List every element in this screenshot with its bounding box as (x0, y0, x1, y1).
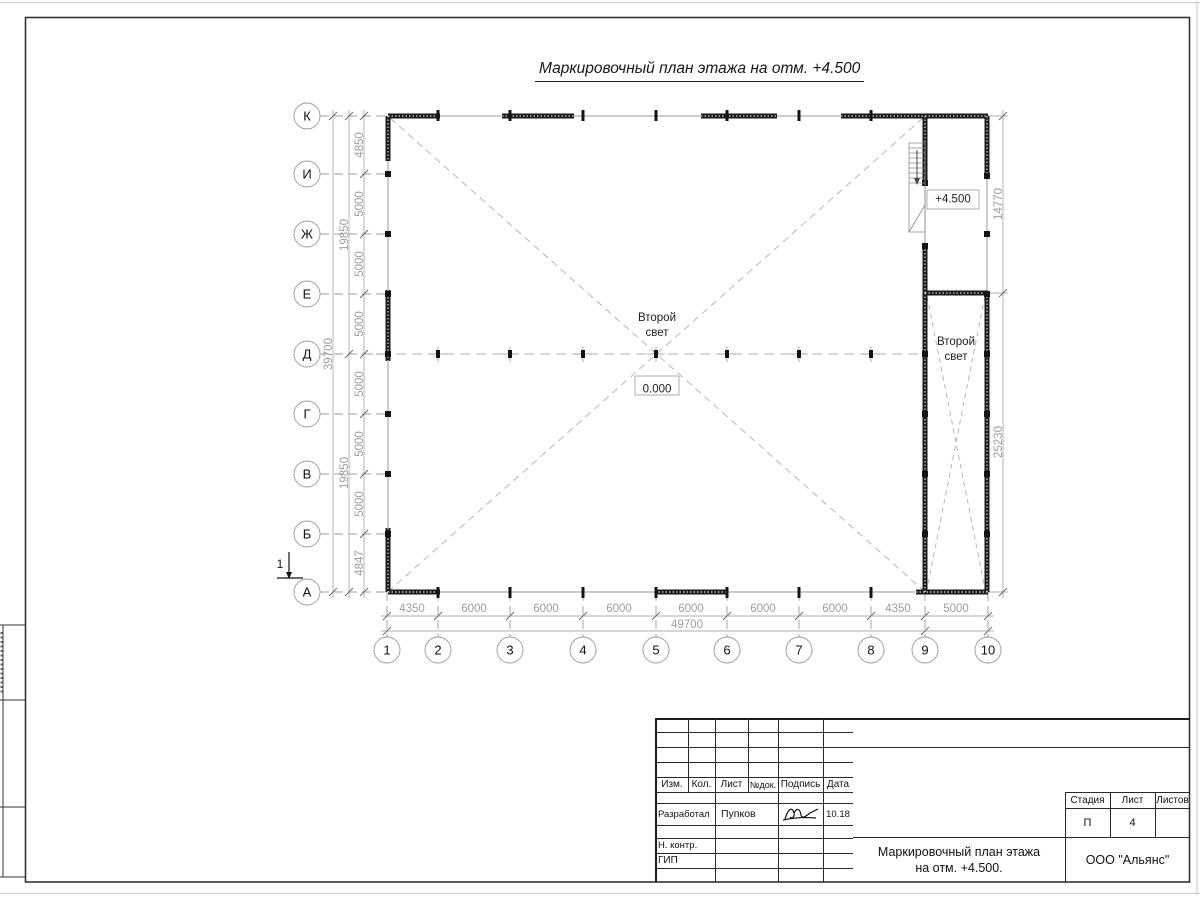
dim-label: 19850 (339, 457, 351, 489)
axis-label: 8 (867, 643, 874, 658)
drawing-sheet: К И Ж Е Д Г В Б А 1 2 3 4 5 6 7 8 9 (0, 0, 1200, 900)
dim-label: 4350 (399, 603, 425, 615)
tb-doc-title-line2: на отм. +4.500. (915, 860, 1002, 877)
dim-label: 5000 (354, 491, 366, 517)
section-mark-label: 1 (277, 557, 284, 571)
second-light-label: свет (645, 327, 669, 339)
dim-label: 39700 (323, 338, 335, 370)
axis-label: Г (303, 407, 310, 422)
second-light-label: Второй (638, 312, 676, 324)
dim-label: 5000 (354, 431, 366, 457)
axis-label: 10 (981, 643, 995, 658)
dim-label: 4847 (354, 550, 366, 576)
dim-label: 6000 (750, 603, 776, 615)
tb-gip-label: ГИП (658, 853, 714, 868)
tb-org-name: ООО "Альянс" (1065, 837, 1190, 882)
tb-stage-value: П (1065, 808, 1110, 837)
tb-col-kol: Кол. (688, 777, 715, 792)
section-mark: 1 (277, 552, 303, 579)
tb-sheet-value: 4 (1110, 808, 1155, 837)
dim-label: 5000 (354, 251, 366, 277)
axis-label: 4 (579, 643, 586, 658)
elevation-450-label: +4.500 (935, 194, 971, 206)
floor-plan-drawing: К И Ж Е Д Г В Б А 1 2 3 4 5 6 7 8 9 (0, 0, 1200, 900)
dim-label: 25230 (993, 426, 1005, 458)
tb-developed-name: Пупков (721, 803, 777, 825)
stairs-direction-arrow (914, 178, 920, 185)
dim-label: 4850 (354, 132, 366, 158)
tb-developed-label: Разработал (658, 803, 714, 825)
dim-label: 5000 (354, 311, 366, 337)
dim-label: 5000 (354, 371, 366, 397)
tb-doc-title: Маркировочный план этажа на отм. +4.500. (853, 839, 1065, 881)
frame-border (26, 18, 1190, 883)
tb-doc-title-line1: Маркировочный план этажа (878, 844, 1040, 861)
second-light-label: Второй (937, 336, 975, 348)
dimension-lines (333, 110, 1008, 631)
axis-label: К (303, 109, 311, 124)
tb-col-izm: Изм. (656, 777, 688, 792)
col-axis-bubbles: 1 2 3 4 5 6 7 8 9 10 (374, 637, 1001, 663)
void-diagonals (364, 118, 985, 590)
second-light-label: свет (944, 351, 968, 363)
tb-col-ndok: №док. (748, 777, 778, 792)
axis-label: И (302, 167, 311, 182)
axis-label: В (303, 467, 312, 482)
dim-label: 6000 (606, 603, 632, 615)
dimensions-bottom: 4350 6000 6000 6000 6000 6000 6000 4350 … (399, 603, 969, 631)
dim-label: 19850 (339, 219, 351, 251)
axis-label: 1 (383, 643, 390, 658)
dim-label: 14770 (993, 188, 1005, 220)
signature (782, 805, 820, 823)
dim-label: 5000 (943, 603, 969, 615)
axis-label: 2 (434, 643, 441, 658)
row-axis-bubbles: К И Ж Е Д Г В Б А (294, 103, 320, 605)
dim-label: 4350 (885, 603, 911, 615)
dim-label: 6000 (461, 603, 487, 615)
tb-col-data: Дата (823, 777, 853, 792)
axis-label: Ж (301, 227, 313, 242)
axis-label: 5 (652, 643, 659, 658)
axis-label: Б (303, 527, 312, 542)
elevation-zero-label: 0.000 (643, 384, 672, 396)
axis-label: 9 (921, 643, 928, 658)
axis-label: Е (303, 287, 312, 302)
dim-label: 6000 (678, 603, 704, 615)
dim-label: 5000 (354, 191, 366, 217)
interior-columns (429, 347, 880, 362)
dimension-ticks (329, 112, 1007, 635)
frame-attribute-cells (0, 625, 25, 877)
dim-label: 6000 (822, 603, 848, 615)
dim-label: 49700 (671, 619, 703, 631)
tb-developed-date: 10.18 (823, 803, 853, 825)
axis-label: 3 (506, 643, 513, 658)
dim-label: 6000 (533, 603, 559, 615)
tb-sheet-label: Лист (1110, 792, 1155, 808)
tb-col-list: Лист (715, 777, 748, 792)
tb-sheets-label: Листов (1155, 792, 1190, 808)
axis-label: Д (303, 347, 312, 362)
axis-label: А (303, 585, 312, 600)
dimensions-left: 4850 5000 5000 5000 5000 5000 5000 4847 … (323, 132, 366, 576)
tb-ncontr-label: Н. контр. (658, 838, 714, 853)
axis-label: 7 (795, 643, 802, 658)
axis-label: 6 (723, 643, 730, 658)
sheet-edges (0, 3, 1200, 895)
tb-stage-label: Стадия (1065, 792, 1110, 808)
tb-col-podpis: Подпись (778, 777, 823, 792)
drawing-title: Маркировочный план этажа на отм. +4.500 (535, 60, 864, 82)
